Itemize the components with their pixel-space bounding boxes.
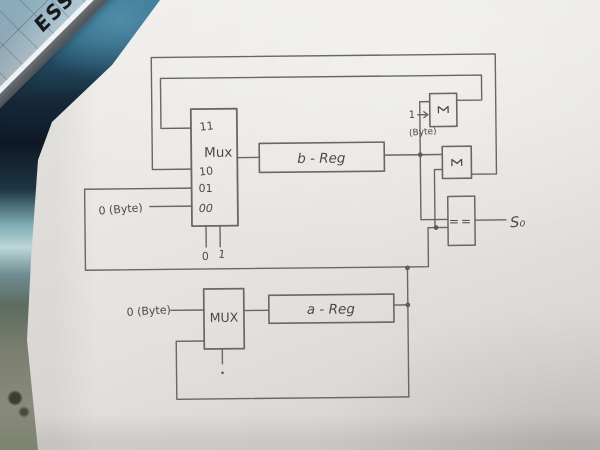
wire-feedback-to-comparator	[85, 227, 448, 270]
photo-of-hand-drawn-diagram: ESS	[0, 0, 600, 450]
pencil-mark-dot	[221, 372, 224, 375]
mux-top-input-11-label: 11	[199, 119, 214, 134]
pencil-diagram: 11 Mux 10 01 00 0 1 b - Reg Σ 1 (Byte) Σ…	[0, 0, 600, 450]
mux-top-input-00-label: 00	[199, 202, 213, 215]
a-reg-label: a - Reg	[307, 301, 356, 318]
mux-top-input-10-label: 10	[199, 164, 214, 178]
wire-breg-to-sigmabottom	[384, 155, 442, 156]
const0-bottom-label: 0 (Byte)	[126, 303, 171, 319]
mux-top-title: Mux	[204, 145, 232, 161]
sigma-top-const-unit: (Byte)	[409, 127, 437, 139]
wire-feedback-vertical	[407, 267, 408, 397]
comparator-label: ==	[449, 214, 473, 228]
mux-top-select0-label: 0	[202, 250, 209, 263]
comparator-output-label: S₀	[510, 214, 526, 231]
junction-dot-breg	[418, 152, 423, 157]
const0-top-label: 0 (Byte)	[98, 201, 143, 218]
mux-top-input-01-label: 01	[199, 182, 213, 195]
wire-feedback-to-muxbottom	[176, 339, 409, 399]
mux-bottom-title: MUX	[210, 310, 239, 325]
sigma-top-glyph: Σ	[434, 105, 452, 115]
mux-top-select1-label: 1	[217, 247, 226, 261]
b-reg-label: b - Reg	[297, 151, 346, 168]
sigma-bottom-glyph: Σ	[447, 158, 465, 168]
sigma-top-const-value: 1	[409, 110, 415, 121]
junction-dot-areg-out	[405, 302, 410, 307]
